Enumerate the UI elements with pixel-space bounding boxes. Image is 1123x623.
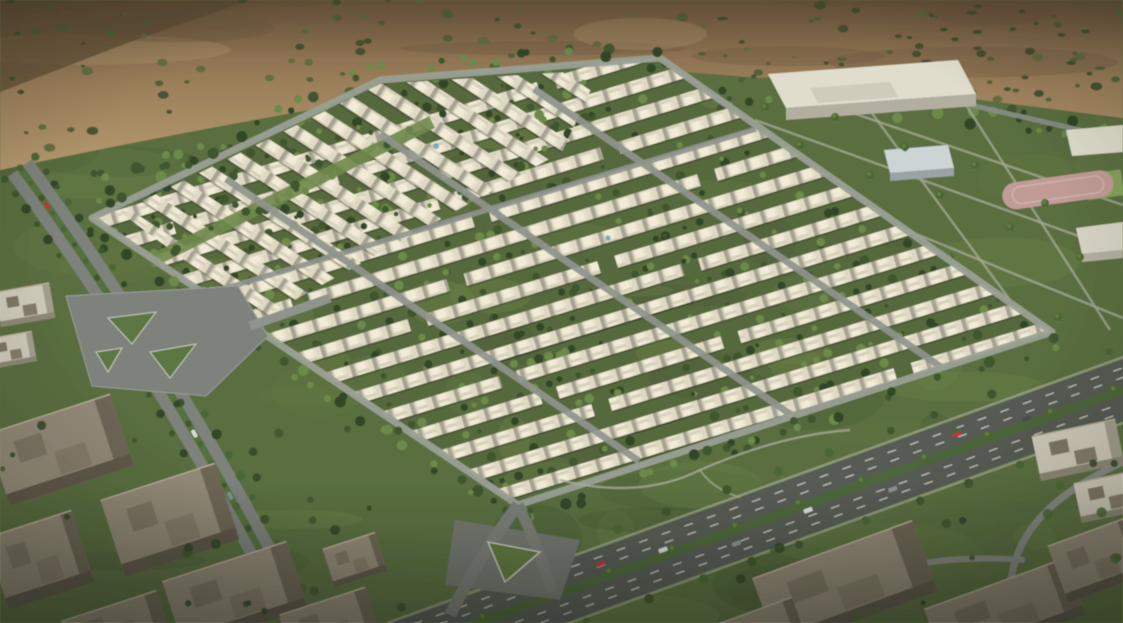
aerial-render-canvas xyxy=(0,0,1123,623)
scene-root xyxy=(0,0,1123,623)
vignette xyxy=(0,0,1123,623)
aerial-render xyxy=(0,0,1123,623)
